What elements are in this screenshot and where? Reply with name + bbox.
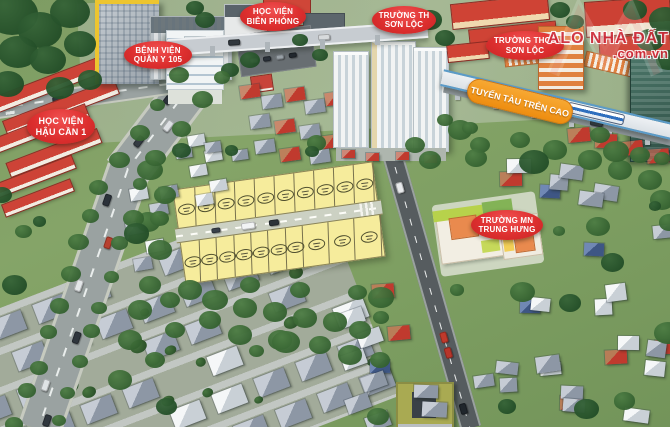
villa-house xyxy=(567,127,590,143)
elevated-rail-viaduct xyxy=(440,69,670,139)
villa-house xyxy=(254,139,276,155)
logistics-academy-building xyxy=(0,156,76,198)
tree xyxy=(249,345,264,357)
lane-line xyxy=(124,67,205,174)
tree xyxy=(650,190,670,209)
villa-house xyxy=(74,278,111,308)
tree xyxy=(144,352,162,368)
villa-house xyxy=(364,410,392,427)
plot-stamp xyxy=(253,246,270,259)
car xyxy=(443,347,453,360)
tree xyxy=(578,150,602,169)
villa-house xyxy=(145,239,165,254)
plot-stamp xyxy=(317,183,334,196)
tree xyxy=(0,187,12,203)
tree xyxy=(293,308,317,327)
land-plot xyxy=(286,224,305,270)
tree xyxy=(290,282,310,298)
son-loc-secondary-school-building xyxy=(585,0,670,37)
car xyxy=(318,34,330,41)
tree xyxy=(654,152,670,165)
tree xyxy=(465,149,487,167)
tree xyxy=(145,352,165,368)
crosswalk xyxy=(4,98,15,116)
plot-stamp xyxy=(218,250,235,263)
striped-facade-building xyxy=(584,52,642,78)
tree xyxy=(46,77,74,99)
car xyxy=(228,39,240,46)
tower-yellow-trim-building xyxy=(95,0,159,84)
tree xyxy=(133,178,147,189)
villa-house xyxy=(495,361,519,376)
plot-stamp xyxy=(334,234,351,247)
villa-house xyxy=(473,374,495,389)
tree xyxy=(419,151,441,169)
tree xyxy=(91,302,107,315)
tree xyxy=(124,223,149,243)
logistics-academy-building xyxy=(3,79,119,135)
plot-stamp xyxy=(287,241,304,254)
tree xyxy=(0,36,38,68)
villa-house xyxy=(122,378,159,408)
kg-ground xyxy=(431,191,544,277)
plot-stamp xyxy=(361,230,378,243)
tree xyxy=(309,336,331,354)
tree xyxy=(418,10,442,29)
villa-house xyxy=(344,392,372,414)
villa-house xyxy=(595,134,617,149)
tree xyxy=(307,135,326,151)
villa-house xyxy=(595,298,613,315)
tree xyxy=(266,221,284,237)
plot-row-top xyxy=(173,163,376,228)
tree xyxy=(656,50,670,69)
tree xyxy=(282,315,300,332)
car xyxy=(250,58,259,64)
villa-house xyxy=(500,377,518,392)
tree xyxy=(312,49,328,62)
villa-house xyxy=(500,172,522,186)
tree xyxy=(590,127,610,143)
plot-stamp xyxy=(297,185,314,198)
kg-orange-block xyxy=(514,232,534,252)
plot-stamp xyxy=(308,238,325,251)
lane-line xyxy=(384,132,471,427)
car xyxy=(439,331,449,344)
villa-house xyxy=(129,187,149,202)
tree xyxy=(172,121,191,136)
car xyxy=(276,54,285,60)
rail-pier xyxy=(607,123,612,136)
car xyxy=(265,38,274,44)
villa-house xyxy=(133,257,153,272)
tree xyxy=(50,0,90,28)
tree xyxy=(498,399,516,414)
tree xyxy=(292,34,308,47)
land-plot xyxy=(268,226,287,272)
tree xyxy=(52,415,66,426)
hospital-roof-unit xyxy=(184,36,206,52)
tree xyxy=(636,29,664,51)
tree xyxy=(630,147,650,163)
tree xyxy=(201,387,215,400)
villa-house xyxy=(618,336,639,350)
tree xyxy=(169,67,189,83)
land-plot xyxy=(234,231,253,277)
villa-house xyxy=(340,348,368,370)
tree xyxy=(18,12,62,47)
villa-house xyxy=(559,164,584,181)
tree xyxy=(60,387,75,399)
land-plot xyxy=(303,220,331,267)
car xyxy=(254,40,263,46)
tree xyxy=(72,355,88,368)
car xyxy=(133,135,146,149)
tree xyxy=(123,210,144,227)
car xyxy=(211,227,221,233)
villa-house xyxy=(204,149,223,163)
car xyxy=(40,378,51,392)
villa-house xyxy=(284,87,306,103)
tree xyxy=(470,137,490,153)
main-avenue-road xyxy=(18,162,149,427)
tree xyxy=(543,140,567,159)
villa-house xyxy=(359,367,396,397)
villa-house xyxy=(306,228,343,258)
tree xyxy=(272,331,300,354)
tree xyxy=(263,302,287,321)
villa-house xyxy=(560,396,582,410)
plot-stamp xyxy=(198,199,215,212)
villa-house xyxy=(540,185,561,199)
rail-pier xyxy=(455,87,460,100)
road-under-rail xyxy=(443,83,670,148)
tree xyxy=(370,352,390,368)
tree xyxy=(195,12,215,28)
tree xyxy=(225,145,238,156)
tree xyxy=(136,212,160,231)
tree xyxy=(348,285,367,300)
tree xyxy=(30,46,66,75)
overpass-pier xyxy=(375,35,380,45)
tree xyxy=(435,30,455,46)
tree xyxy=(192,91,213,108)
land-plot xyxy=(200,236,219,282)
apartment-tower xyxy=(334,52,368,147)
car xyxy=(102,193,113,207)
tree xyxy=(367,408,389,425)
apartment-tower xyxy=(414,48,448,151)
tree xyxy=(228,325,252,344)
villa-house xyxy=(0,310,27,340)
tower-podium xyxy=(336,148,446,161)
tree xyxy=(30,361,48,375)
tree xyxy=(199,311,221,329)
military-hospital-105-building xyxy=(166,30,224,90)
tree xyxy=(78,70,102,89)
villa-house xyxy=(396,152,409,160)
rail-pier xyxy=(531,105,536,118)
tree xyxy=(165,322,185,338)
villa-house xyxy=(233,415,270,427)
red-roof-pavilion xyxy=(251,75,273,93)
plot-stamp xyxy=(277,188,294,201)
villa-house xyxy=(54,325,91,355)
son-loc-primary-school-building xyxy=(451,0,549,29)
elevated-overpass xyxy=(168,21,429,56)
rail-pier xyxy=(569,114,574,127)
villa-house xyxy=(647,148,670,163)
villa-house xyxy=(563,398,586,413)
tree xyxy=(156,398,177,415)
tree xyxy=(450,284,464,295)
villa-house xyxy=(253,367,290,397)
villa-house xyxy=(32,294,69,324)
villa-house xyxy=(149,202,169,217)
tree xyxy=(2,275,28,296)
tree xyxy=(0,0,38,35)
tree xyxy=(50,298,69,314)
plot-stamp xyxy=(237,194,254,207)
villa-house xyxy=(520,300,540,313)
tree xyxy=(510,282,535,302)
tree xyxy=(160,292,180,308)
poi-label-truong-thcs-son-loc: TRƯỜNG THCS SƠN LỘC xyxy=(486,31,564,60)
villa-house xyxy=(309,149,331,165)
logistics-academy-building xyxy=(7,129,102,176)
tree xyxy=(33,216,46,226)
car xyxy=(458,403,468,416)
kg-lime-block xyxy=(481,239,500,253)
tree xyxy=(118,330,142,349)
villa-district xyxy=(0,186,399,427)
villa-house xyxy=(356,326,384,348)
villa-house xyxy=(269,282,306,312)
villa-house xyxy=(264,245,301,275)
tree xyxy=(240,277,260,293)
villa-house xyxy=(249,114,271,130)
kg-green-roof xyxy=(482,198,514,218)
villa-house xyxy=(158,245,195,275)
tree xyxy=(649,7,670,33)
villa-house xyxy=(304,99,326,115)
watermark: ALO NHÀ ĐẤT .com.vn xyxy=(548,30,669,61)
plot-row-bottom xyxy=(181,213,385,283)
tree xyxy=(89,180,108,195)
kg-yellow-block xyxy=(500,219,514,252)
land-plot xyxy=(251,229,270,275)
tree xyxy=(623,0,647,19)
logistics-academy-building xyxy=(0,105,89,154)
tree xyxy=(519,150,549,174)
tree xyxy=(104,271,119,283)
tree xyxy=(323,312,347,331)
plot-access-road xyxy=(175,200,383,244)
hospital-plaza xyxy=(168,90,222,104)
tree xyxy=(214,71,231,85)
villa-house xyxy=(342,150,355,158)
land-plot xyxy=(235,179,256,220)
villa-house xyxy=(324,91,346,107)
poi-label-tuyen-tau-tren-cao: TUYẾN TÀU TRÊN CAO xyxy=(465,76,576,126)
watermark-domain: .com.vn xyxy=(548,46,669,61)
overpass-pier xyxy=(210,46,215,56)
tree xyxy=(18,383,36,397)
plot-stamp xyxy=(218,196,235,209)
tree xyxy=(448,120,472,139)
lane-line xyxy=(176,206,382,237)
striped-facade-building xyxy=(504,44,552,67)
car xyxy=(42,414,53,427)
apartment-tower xyxy=(372,42,415,153)
son-loc-secondary-school-building xyxy=(599,34,670,61)
tree xyxy=(137,160,163,181)
villa-house xyxy=(12,341,49,371)
land-plot xyxy=(195,185,216,226)
plot-stamp xyxy=(257,191,274,204)
kg-lime-roof xyxy=(432,205,483,223)
tree xyxy=(163,344,178,357)
land-plot xyxy=(217,233,236,279)
car xyxy=(162,119,175,133)
tree xyxy=(240,52,260,68)
glass-tower xyxy=(630,56,670,162)
tree xyxy=(39,397,51,407)
villa-house xyxy=(96,309,133,339)
tree xyxy=(437,114,453,127)
tree xyxy=(150,211,168,226)
car xyxy=(243,41,252,47)
tree xyxy=(233,298,257,317)
tree xyxy=(601,253,624,271)
tree xyxy=(128,337,148,355)
villa-house xyxy=(169,400,206,427)
villa-house xyxy=(387,325,410,341)
plot-stamp xyxy=(201,253,218,266)
car xyxy=(52,96,65,105)
tree xyxy=(268,330,292,349)
villa-house xyxy=(204,141,221,153)
tree xyxy=(61,266,81,282)
villa-house xyxy=(180,277,217,307)
villa-house xyxy=(370,360,390,373)
villa-house xyxy=(337,335,374,365)
logistics-academy-building xyxy=(0,59,101,112)
villa-house xyxy=(550,175,570,192)
tree xyxy=(649,201,661,211)
villa-house xyxy=(605,349,628,364)
car xyxy=(590,119,604,128)
tree xyxy=(178,280,202,299)
tree xyxy=(130,125,150,141)
tree xyxy=(614,392,636,409)
tree xyxy=(194,357,207,369)
villa-house xyxy=(539,362,561,376)
villa-house xyxy=(579,190,605,207)
tree xyxy=(0,71,24,97)
villa-house xyxy=(372,283,395,299)
land-plot xyxy=(354,162,375,203)
land-plot xyxy=(215,182,236,223)
villa-house xyxy=(274,119,296,135)
land-plot xyxy=(334,165,355,206)
car xyxy=(162,92,175,106)
tree xyxy=(186,1,204,15)
crosswalk xyxy=(359,202,375,217)
land-plot xyxy=(183,238,202,284)
tree xyxy=(253,395,263,404)
white-slab-building xyxy=(224,4,274,44)
kg-orange-block xyxy=(450,216,479,239)
tree xyxy=(139,307,150,317)
villa-house xyxy=(159,185,179,200)
tree xyxy=(109,152,130,168)
tree xyxy=(139,276,161,294)
kg-right-wing xyxy=(498,213,543,260)
tree xyxy=(108,370,132,389)
villa-house xyxy=(185,315,222,345)
villa-house xyxy=(366,153,379,161)
tree xyxy=(368,287,394,308)
villa-house xyxy=(261,94,283,110)
car xyxy=(241,221,256,230)
land-plot xyxy=(274,173,295,214)
plot-stamp xyxy=(235,248,252,261)
tree xyxy=(654,322,670,344)
villa-house xyxy=(584,243,605,257)
tree xyxy=(111,236,128,250)
tree xyxy=(553,226,565,236)
car xyxy=(482,94,494,102)
dark-roof-block xyxy=(304,14,344,30)
villa-house xyxy=(138,293,175,323)
midrise-building xyxy=(150,16,232,80)
villa-house xyxy=(209,179,228,193)
tree xyxy=(367,358,377,367)
villa-house xyxy=(605,283,627,302)
plot-stamp xyxy=(356,177,373,190)
poi-label-truong-th-son-loc: TRƯỜNG TH SƠN LỘC xyxy=(372,6,436,34)
land-plot xyxy=(355,213,383,260)
tree xyxy=(148,240,172,259)
tree xyxy=(603,141,629,162)
land-plot xyxy=(175,187,196,228)
villa-house xyxy=(275,399,312,427)
villa-house xyxy=(317,383,354,413)
roof-courtyard xyxy=(412,392,436,418)
tree xyxy=(221,63,239,77)
poi-label-benh-vien-quan-y-105: BỆNH VIỆN QUÂN Y 105 xyxy=(124,41,192,69)
villa-house xyxy=(38,410,75,427)
tree xyxy=(68,234,89,250)
plot-stamp xyxy=(270,243,287,256)
villa-house xyxy=(295,351,332,381)
watermark-site-name: ALO NHÀ ĐẤT xyxy=(548,30,669,48)
tree xyxy=(305,146,319,157)
lane-line xyxy=(0,78,201,109)
tree xyxy=(154,186,176,204)
villa-house xyxy=(200,229,237,259)
tree xyxy=(82,209,99,223)
plot-stamp xyxy=(184,255,201,268)
villa-house xyxy=(624,408,650,424)
villa-house xyxy=(284,197,321,227)
tree xyxy=(338,345,362,364)
rail-pier xyxy=(493,96,498,109)
car xyxy=(263,56,272,62)
tree xyxy=(83,324,101,338)
tree xyxy=(608,160,632,179)
